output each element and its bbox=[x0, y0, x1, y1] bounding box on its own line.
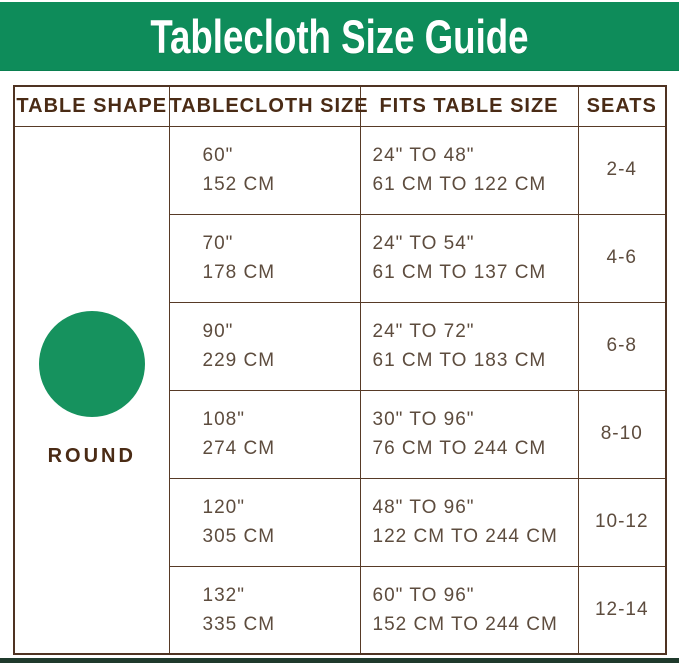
size-inches: 60" bbox=[203, 141, 360, 170]
size-guide-table: TABLE SHAPE TABLECLOTH SIZE FITS TABLE S… bbox=[13, 85, 667, 655]
fits-cell: 60" TO 96" 152 CM TO 244 CM bbox=[360, 566, 578, 654]
size-inches: 120" bbox=[203, 493, 360, 522]
header-seats: SEATS bbox=[578, 86, 666, 126]
size-cell: 60" 152 CM bbox=[169, 126, 360, 214]
size-cell: 108" 274 CM bbox=[169, 390, 360, 478]
fits-cm: 76 CM TO 244 CM bbox=[373, 434, 578, 463]
seats-cell: 6-8 bbox=[578, 302, 666, 390]
size-cell: 70" 178 CM bbox=[169, 214, 360, 302]
size-cell: 120" 305 CM bbox=[169, 478, 360, 566]
fits-inches: 24" TO 48" bbox=[373, 141, 578, 170]
size-inches: 108" bbox=[203, 405, 360, 434]
tablecloth-size-guide-page: Tablecloth Size Guide TABLE SHAPE TABLEC… bbox=[0, 0, 679, 663]
shape-cell: ROUND bbox=[14, 126, 169, 654]
fits-cell: 30" TO 96" 76 CM TO 244 CM bbox=[360, 390, 578, 478]
fits-inches: 24" TO 54" bbox=[373, 229, 578, 258]
seats-cell: 12-14 bbox=[578, 566, 666, 654]
seats-cell: 10-12 bbox=[578, 478, 666, 566]
fits-cell: 24" TO 54" 61 CM TO 137 CM bbox=[360, 214, 578, 302]
table-row: ROUND 60" 152 CM 24" TO 48" 61 CM TO 122… bbox=[14, 126, 666, 214]
bottom-accent-bar bbox=[0, 658, 679, 663]
fits-cm: 152 CM TO 244 CM bbox=[373, 610, 578, 639]
shape-label: ROUND bbox=[15, 445, 169, 468]
seats-cell: 4-6 bbox=[578, 214, 666, 302]
fits-cell: 24" TO 72" 61 CM TO 183 CM bbox=[360, 302, 578, 390]
size-cm: 178 CM bbox=[203, 258, 360, 287]
size-inches: 70" bbox=[203, 229, 360, 258]
size-inches: 90" bbox=[203, 317, 360, 346]
table-header-row: TABLE SHAPE TABLECLOTH SIZE FITS TABLE S… bbox=[14, 86, 666, 126]
seats-cell: 8-10 bbox=[578, 390, 666, 478]
size-cell: 90" 229 CM bbox=[169, 302, 360, 390]
fits-inches: 60" TO 96" bbox=[373, 581, 578, 610]
header-tablecloth-size: TABLECLOTH SIZE bbox=[169, 86, 360, 126]
fits-cm: 61 CM TO 183 CM bbox=[373, 346, 578, 375]
size-cm: 229 CM bbox=[203, 346, 360, 375]
fits-inches: 48" TO 96" bbox=[373, 493, 578, 522]
fits-cm: 61 CM TO 122 CM bbox=[373, 170, 578, 199]
fits-cell: 24" TO 48" 61 CM TO 122 CM bbox=[360, 126, 578, 214]
title-banner: Tablecloth Size Guide bbox=[0, 2, 679, 71]
fits-cell: 48" TO 96" 122 CM TO 244 CM bbox=[360, 478, 578, 566]
header-fits-table-size: FITS TABLE SIZE bbox=[360, 86, 578, 126]
size-cm: 335 CM bbox=[203, 610, 360, 639]
page-title: Tablecloth Size Guide bbox=[150, 9, 528, 64]
size-cm: 305 CM bbox=[203, 522, 360, 551]
size-cm: 152 CM bbox=[203, 170, 360, 199]
fits-inches: 24" TO 72" bbox=[373, 317, 578, 346]
size-inches: 132" bbox=[203, 581, 360, 610]
seats-cell: 2-4 bbox=[578, 126, 666, 214]
round-circle-icon bbox=[39, 311, 145, 417]
fits-inches: 30" TO 96" bbox=[373, 405, 578, 434]
fits-cm: 61 CM TO 137 CM bbox=[373, 258, 578, 287]
header-table-shape: TABLE SHAPE bbox=[14, 86, 169, 126]
size-cm: 274 CM bbox=[203, 434, 360, 463]
fits-cm: 122 CM TO 244 CM bbox=[373, 522, 578, 551]
size-cell: 132" 335 CM bbox=[169, 566, 360, 654]
